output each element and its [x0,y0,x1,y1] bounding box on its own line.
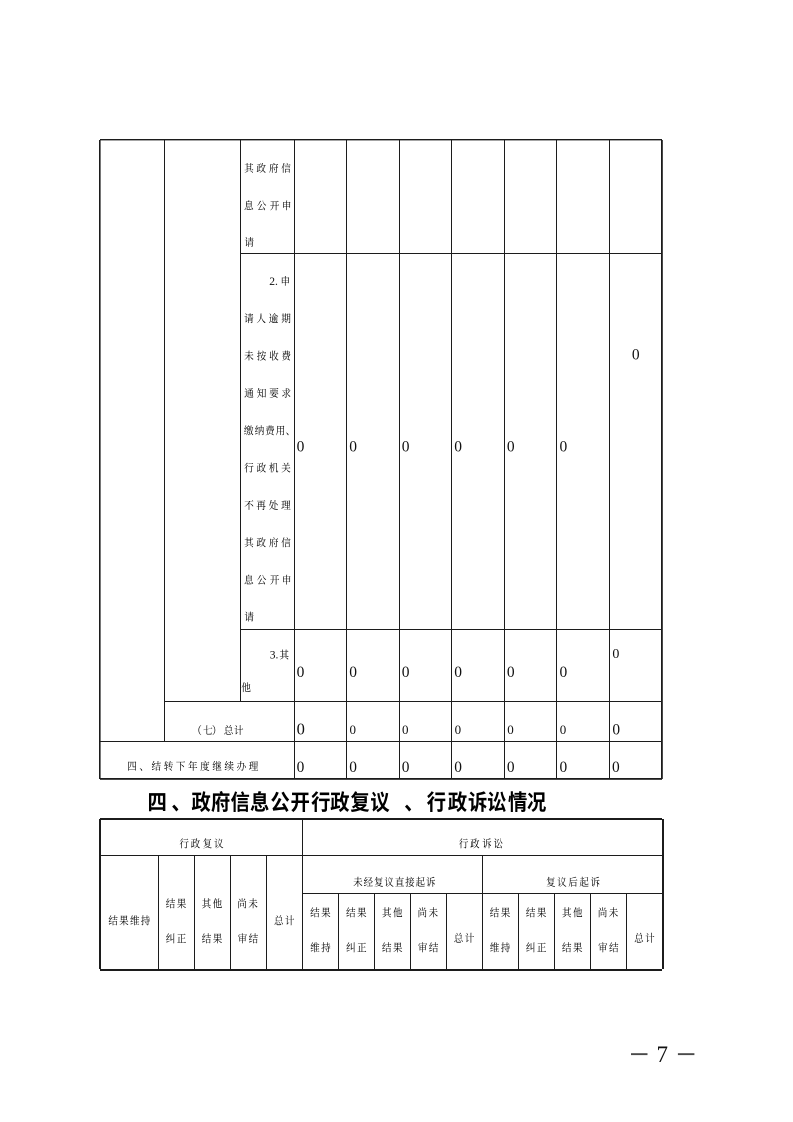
svg-text:0: 0 [507,722,514,737]
svg-text:0: 0 [560,664,568,681]
svg-text:0: 0 [454,759,462,776]
svg-text:0: 0 [297,439,305,456]
svg-text:0: 0 [507,664,515,681]
svg-text:0: 0 [349,664,357,681]
svg-text:0: 0 [507,439,515,456]
svg-text:0: 0 [297,720,305,739]
svg-text:0: 0 [454,664,462,681]
svg-text:3.: 3. [270,650,279,662]
svg-text:2.: 2. [269,276,278,288]
svg-text:0: 0 [632,346,640,363]
svg-text:0: 0 [507,759,515,776]
svg-text:0: 0 [297,664,305,681]
svg-text:0: 0 [402,439,410,456]
svg-text:0: 0 [349,759,357,776]
svg-text:0: 0 [560,439,568,456]
svg-text:0: 0 [350,722,357,737]
svg-text:7: 7 [657,1042,669,1067]
svg-text:0: 0 [455,722,462,737]
svg-text:0: 0 [402,722,409,737]
svg-text:0: 0 [297,759,305,776]
svg-text:0: 0 [402,759,410,776]
svg-text:0: 0 [560,759,568,776]
svg-text:0: 0 [612,722,620,739]
svg-text:0: 0 [612,759,620,776]
svg-text:0: 0 [454,439,462,456]
svg-text:0: 0 [560,722,567,737]
svg-text:0: 0 [612,647,619,662]
svg-text:0: 0 [349,439,357,456]
svg-text:0: 0 [402,664,410,681]
